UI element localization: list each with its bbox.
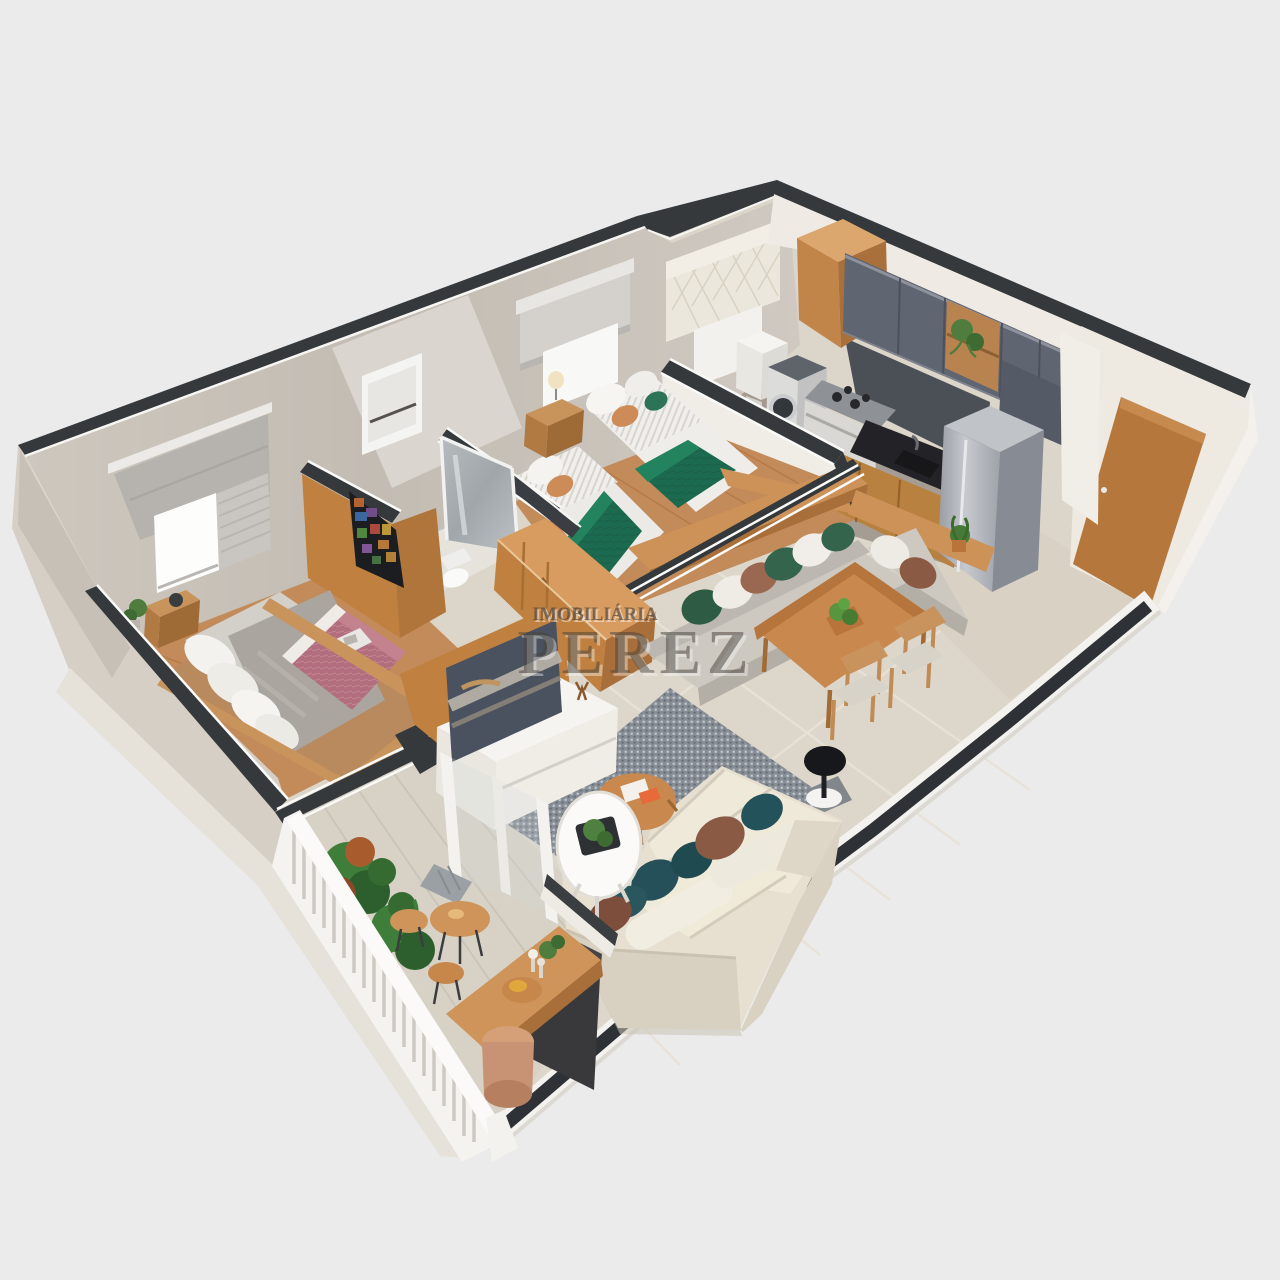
svg-text:PEREZ: PEREZ xyxy=(518,619,755,687)
